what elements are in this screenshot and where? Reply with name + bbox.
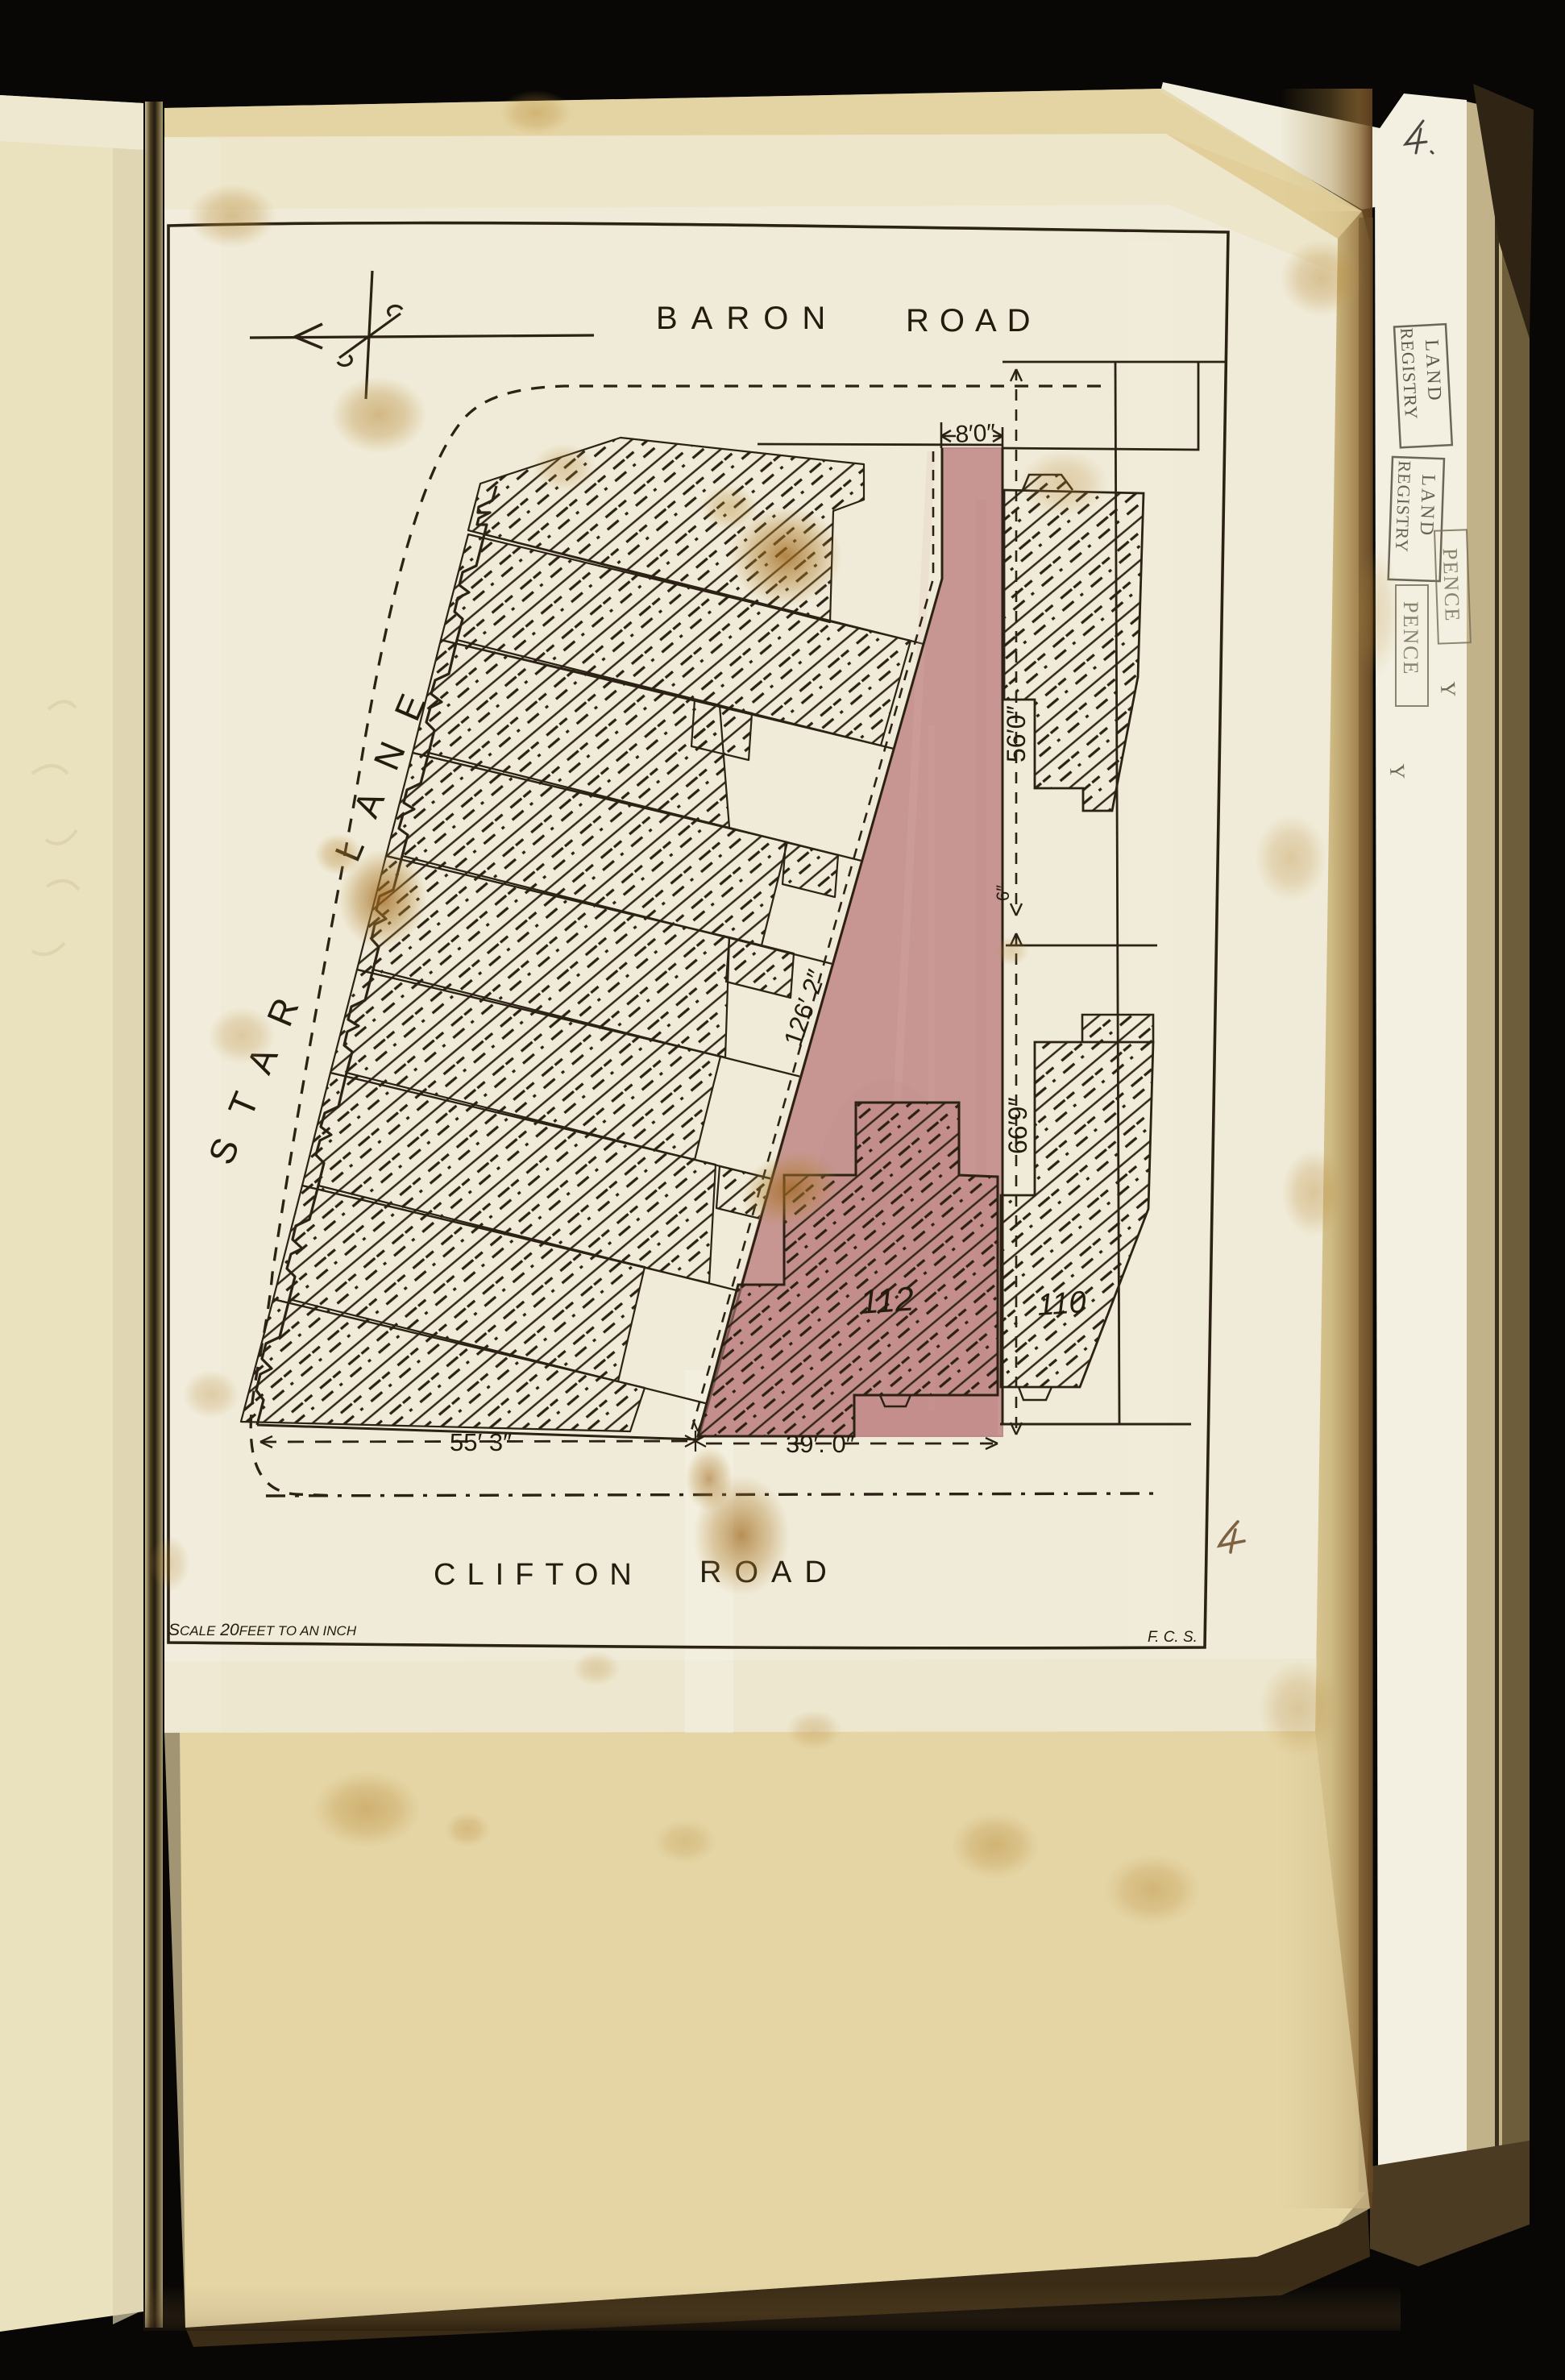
svg-text:PENCE: PENCE xyxy=(1438,548,1464,623)
svg-text:ROAD: ROAD xyxy=(906,303,1041,339)
svg-text:Y: Y xyxy=(1385,763,1409,779)
svg-text:66′9″: 66′9″ xyxy=(1003,1097,1032,1154)
svg-text:F. C. S.: F. C. S. xyxy=(1148,1629,1198,1646)
svg-text:PENCE: PENCE xyxy=(1399,601,1422,675)
svg-text:REGISTRY: REGISTRY xyxy=(1392,460,1415,553)
svg-text:55′ 3″: 55′ 3″ xyxy=(450,1428,512,1456)
svg-text:SCALE 20FEET TO AN INCH: SCALE 20FEET TO AN INCH xyxy=(168,1621,357,1639)
svg-text:LAND: LAND xyxy=(1416,474,1439,538)
svg-text:6″: 6″ xyxy=(993,885,1013,901)
svg-text:LAND: LAND xyxy=(1421,339,1445,404)
svg-text:110: 110 xyxy=(1036,1286,1087,1323)
svg-text:CLIFTON: CLIFTON xyxy=(434,1558,643,1592)
svg-text:39′. 0″: 39′. 0″ xyxy=(786,1430,855,1458)
svg-text:BARON: BARON xyxy=(656,301,839,336)
svg-text:8′0″: 8′0″ xyxy=(955,419,997,448)
svg-text:Y: Y xyxy=(1436,681,1460,697)
svg-text:56′0″: 56′0″ xyxy=(1002,705,1031,762)
svg-text:112: 112 xyxy=(858,1279,915,1321)
